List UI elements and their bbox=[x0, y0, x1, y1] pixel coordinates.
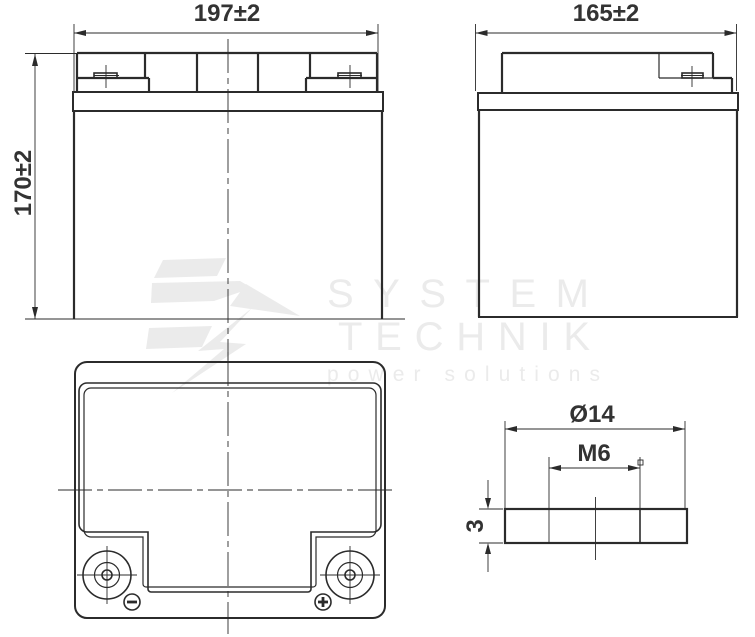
negative-polarity-icon bbox=[124, 594, 140, 610]
positive-polarity-icon bbox=[315, 594, 331, 610]
side-depth-label: 165±2 bbox=[573, 0, 640, 27]
height-dimension: 170±2 bbox=[10, 54, 76, 320]
thread-label: M6 bbox=[577, 440, 610, 467]
front-negative-terminal bbox=[94, 65, 119, 88]
diameter-label: Ø14 bbox=[569, 401, 615, 428]
technical-drawing: SYSTEM TECHNIK power solutions bbox=[0, 0, 755, 637]
front-width-label: 197±2 bbox=[194, 0, 261, 27]
watermark: SYSTEM TECHNIK power solutions bbox=[146, 258, 600, 393]
thickness-dimension: 3 bbox=[462, 480, 503, 572]
watermark-line2: TECHNIK bbox=[338, 315, 590, 359]
top-view bbox=[58, 352, 397, 634]
battery-dimension-drawing: SYSTEM TECHNIK power solutions bbox=[0, 0, 755, 637]
side-top-band bbox=[478, 93, 738, 110]
terminal-detail: Ø14 M6 3 bbox=[462, 401, 687, 572]
positive-terminal bbox=[320, 546, 380, 604]
top-view-lid-inner bbox=[84, 388, 376, 587]
thread-dimension: M6 bbox=[549, 440, 643, 509]
thickness-label: 3 bbox=[462, 519, 489, 532]
terminal-plate bbox=[505, 509, 687, 543]
side-terminal bbox=[681, 66, 704, 87]
watermark-line1: SYSTEM bbox=[327, 272, 589, 316]
height-label: 170±2 bbox=[10, 150, 37, 217]
top-view-lid-outer bbox=[79, 383, 381, 592]
front-positive-terminal bbox=[337, 65, 362, 88]
watermark-logo-icon bbox=[146, 258, 300, 393]
